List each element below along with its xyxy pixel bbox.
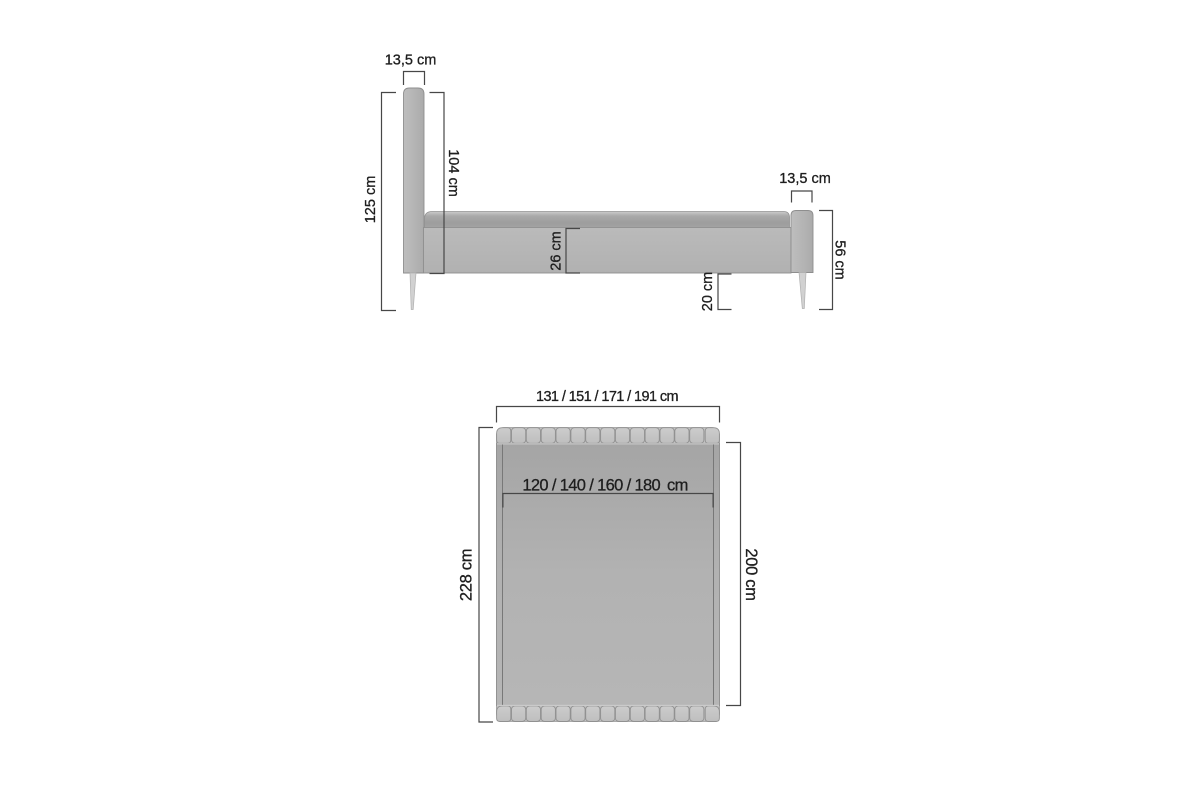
svg-text:13,5 cm: 13,5 cm <box>385 53 437 69</box>
svg-text:104 cm: 104 cm <box>445 149 461 197</box>
svg-text:125 cm: 125 cm <box>363 176 379 224</box>
svg-text:228 cm: 228 cm <box>458 549 476 601</box>
svg-text:120 / 140 / 160 / 180 cm: 120 / 140 / 160 / 180 cm <box>522 476 687 494</box>
svg-text:13,5 cm: 13,5 cm <box>779 171 831 187</box>
svg-text:131 / 151 / 171 / 191 cm: 131 / 151 / 171 / 191 cm <box>536 389 679 405</box>
svg-text:26 cm: 26 cm <box>549 231 565 271</box>
svg-text:200 cm: 200 cm <box>742 548 760 600</box>
svg-text:20 cm: 20 cm <box>700 272 716 312</box>
svg-text:56 cm: 56 cm <box>832 240 848 280</box>
